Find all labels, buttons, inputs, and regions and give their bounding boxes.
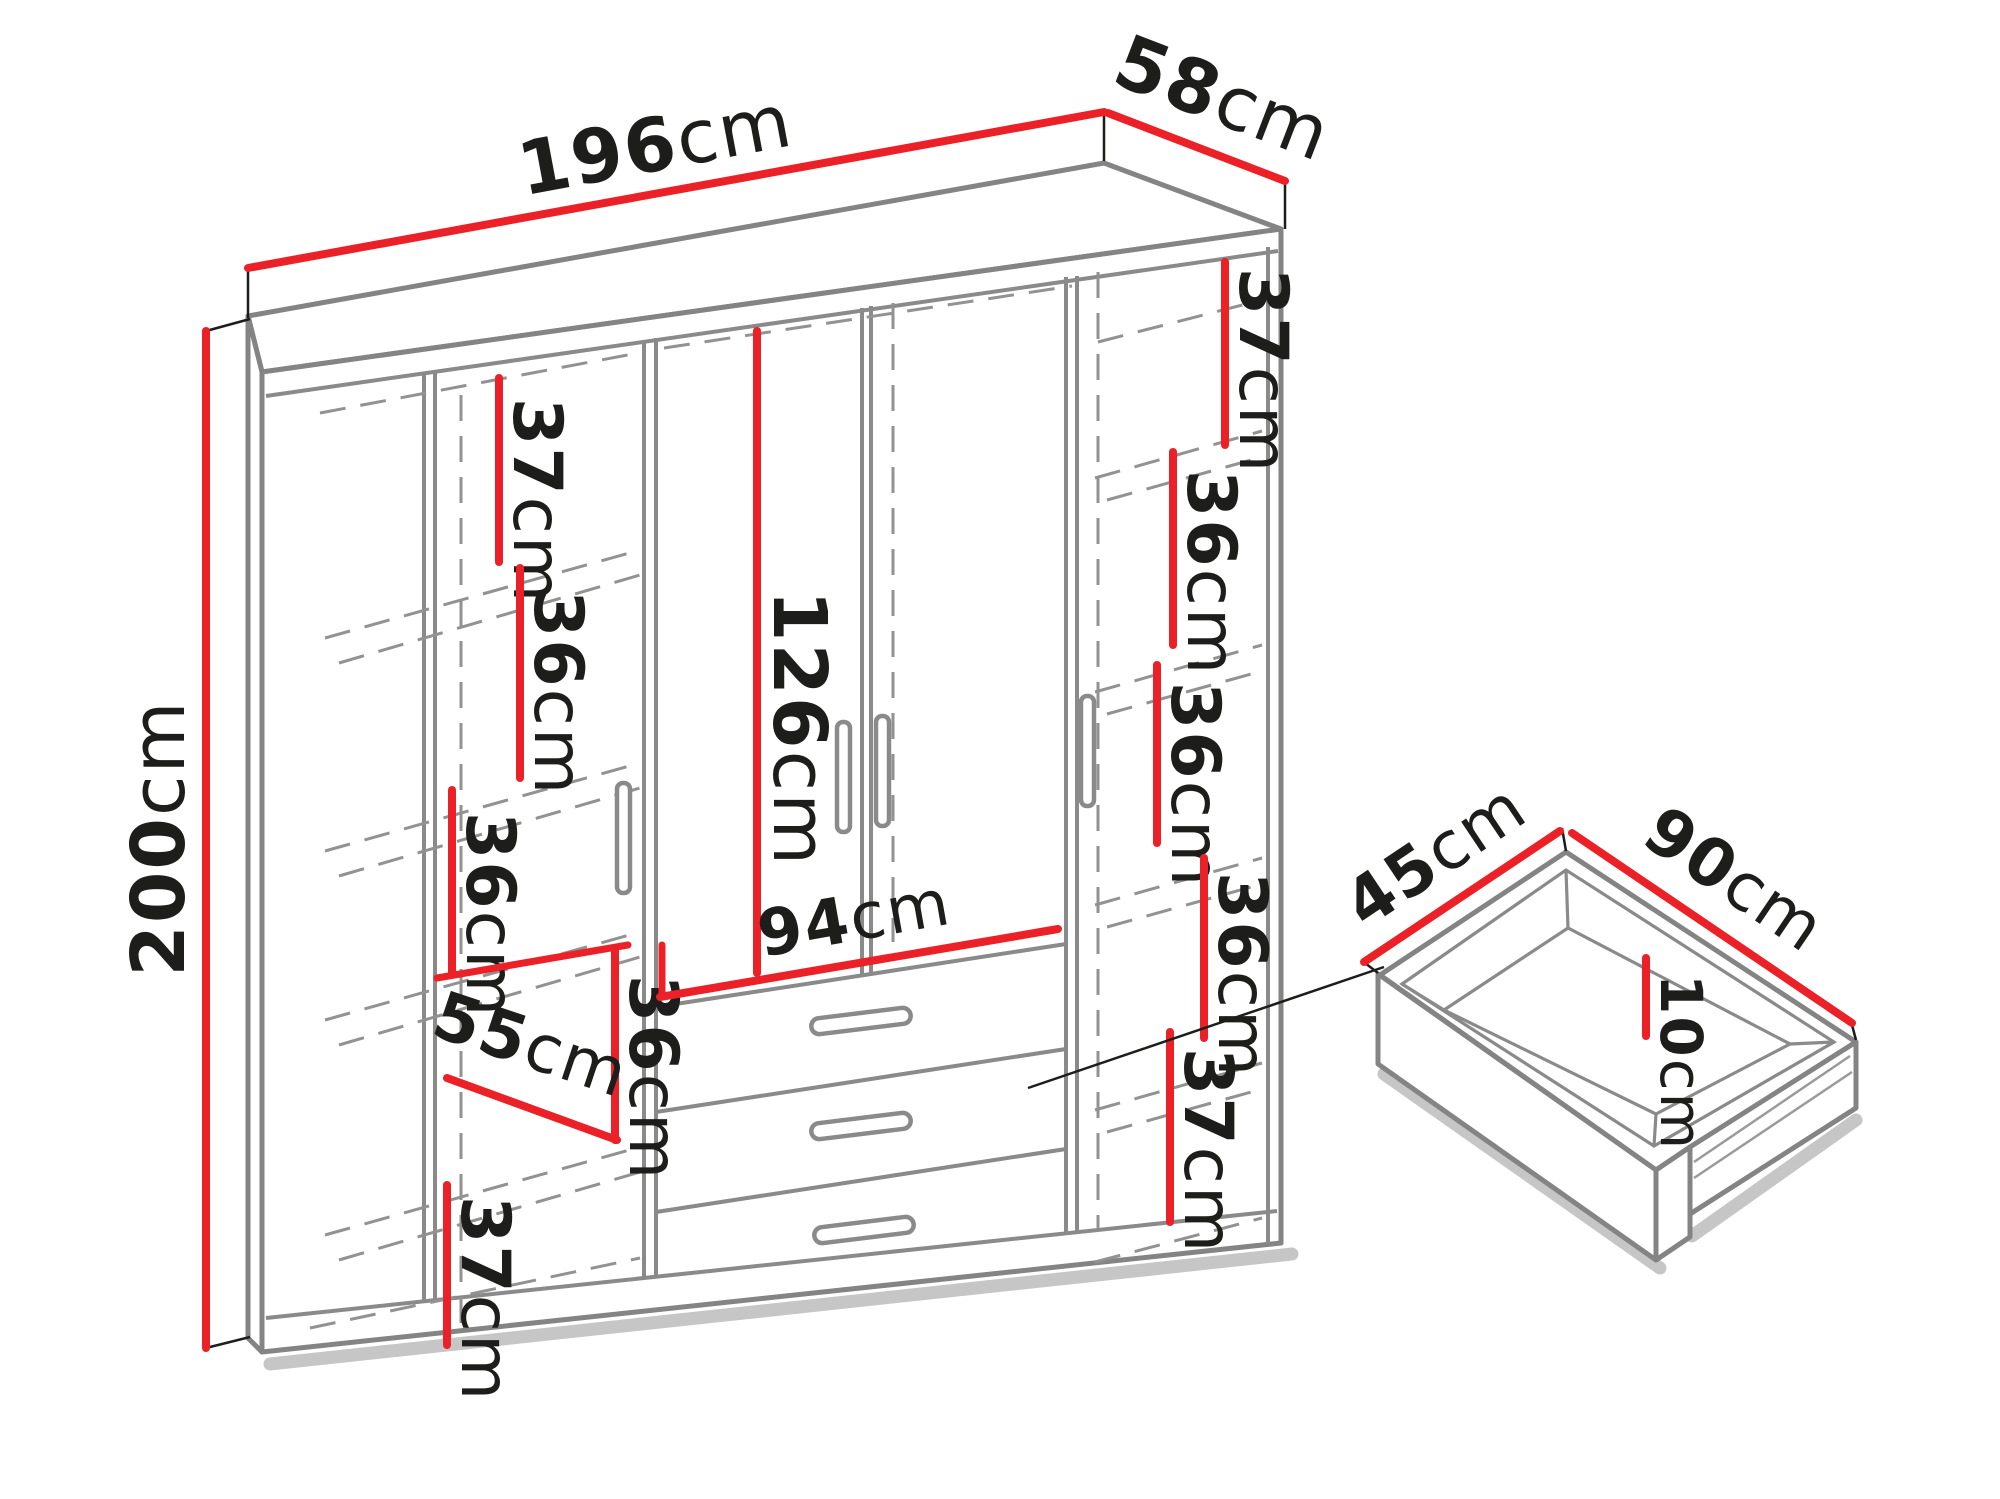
door-handle-icon [1081, 696, 1094, 806]
dim-label-left-1: 37cm [497, 398, 576, 604]
dim-label-left-5: 37cm [445, 1196, 524, 1402]
wardrobe-drawing: 196cm 58cm 200cm 37cm 36cm 36cm 36cm 55c [0, 0, 2000, 1499]
door-handle-icon [617, 783, 630, 893]
dim-label-hanging-height: 126cm [756, 590, 842, 867]
dim-label-height: 200cm [116, 699, 202, 976]
dimension-diagram: 196cm 58cm 200cm 37cm 36cm 36cm 36cm 55c [0, 0, 2000, 1499]
dim-label-drawer-height: 10cm [1647, 974, 1715, 1151]
dim-label-right-3: 36cm [1155, 682, 1234, 888]
drawer-detail: 45cm 90cm 10cm [1331, 768, 1856, 1268]
dim-label-right-2: 36cm [1171, 470, 1250, 676]
dim-label-left-2: 36cm [518, 590, 597, 796]
drawer-front-panel-edge [1656, 1147, 1690, 1260]
dim-label-right-1: 37cm [1223, 268, 1302, 474]
dim-label-right-5: 37cm [1168, 1048, 1247, 1254]
door-handle-icon [876, 716, 889, 826]
